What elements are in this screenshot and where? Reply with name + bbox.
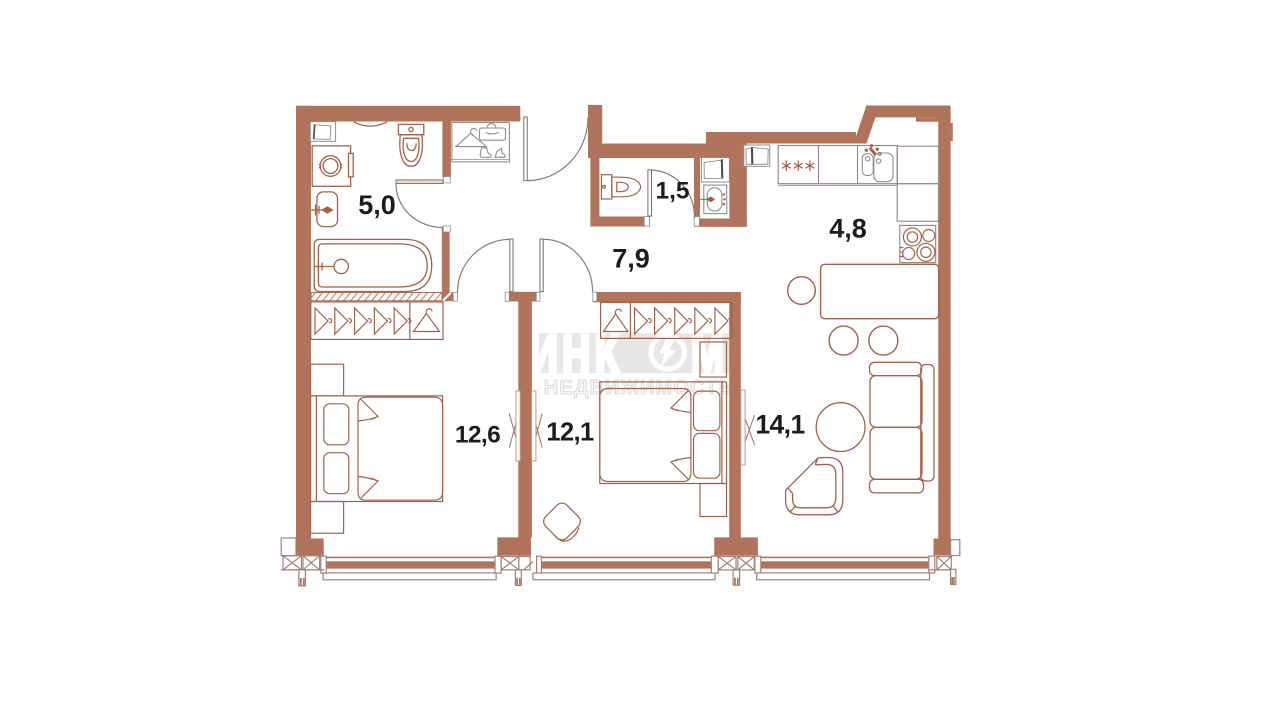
svg-text:12,1: 12,1	[546, 419, 594, 447]
svg-text:5,0: 5,0	[358, 190, 396, 220]
svg-text:7,9: 7,9	[612, 244, 650, 274]
svg-text:14,1: 14,1	[755, 410, 804, 440]
svg-text:ИНК: ИНК	[530, 324, 623, 383]
svg-text:1,5: 1,5	[655, 178, 689, 205]
svg-text:12,6: 12,6	[455, 422, 500, 449]
svg-text:4,8: 4,8	[829, 214, 867, 244]
